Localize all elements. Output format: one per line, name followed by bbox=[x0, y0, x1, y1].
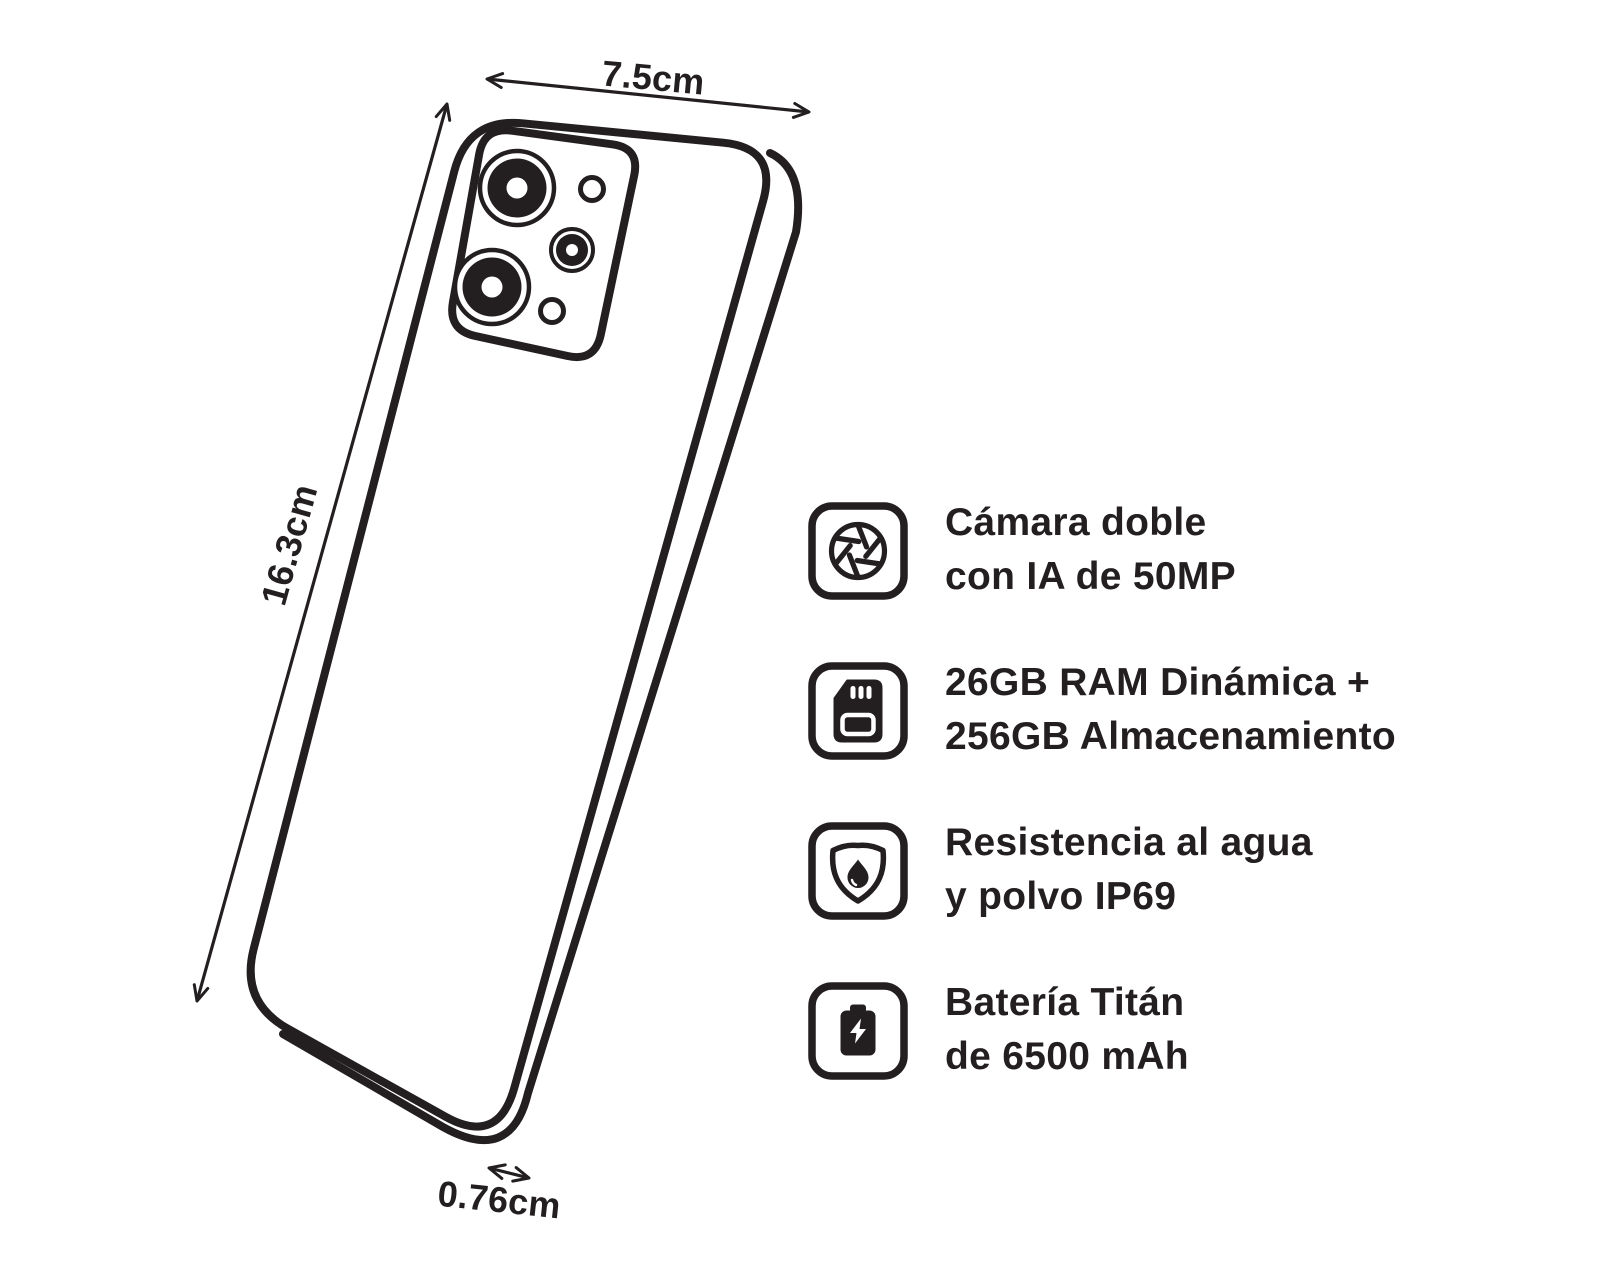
feature-line: 26GB RAM Dinámica + bbox=[945, 656, 1396, 710]
feature-line: 256GB Almacenamiento bbox=[945, 710, 1396, 764]
second-lens bbox=[455, 250, 529, 324]
depth-dimension-label: 0.76cm bbox=[436, 1173, 563, 1227]
shield-water-icon bbox=[808, 822, 908, 920]
feature-text-battery: Batería Titán de 6500 mAh bbox=[945, 976, 1189, 1084]
battery-bolt-icon bbox=[808, 982, 908, 1080]
feature-line: y polvo IP69 bbox=[945, 870, 1313, 924]
feature-row-memory: 26GB RAM Dinámica + 256GB Almacenamiento bbox=[808, 662, 1396, 764]
main-lens bbox=[480, 151, 554, 225]
feature-text-camera: Cámara doble con IA de 50MP bbox=[945, 496, 1236, 604]
depth-dimension: 0.76cm bbox=[436, 1168, 563, 1226]
feature-text-resistance: Resistencia al agua y polvo IP69 bbox=[945, 816, 1313, 924]
sd-card-icon bbox=[808, 662, 908, 760]
camera-aperture-icon bbox=[808, 502, 908, 600]
width-dimension: 7.5cm bbox=[487, 52, 809, 112]
sensor-dot bbox=[541, 300, 564, 323]
feature-line: de 6500 mAh bbox=[945, 1030, 1189, 1084]
width-dimension-label: 7.5cm bbox=[600, 52, 706, 102]
feature-line: con IA de 50MP bbox=[945, 550, 1236, 604]
feature-line: Cámara doble bbox=[945, 496, 1236, 550]
feature-row-camera: Cámara doble con IA de 50MP bbox=[808, 502, 1236, 604]
flash-led bbox=[581, 178, 604, 201]
feature-row-resistance: Resistencia al agua y polvo IP69 bbox=[808, 822, 1313, 924]
feature-text-memory: 26GB RAM Dinámica + 256GB Almacenamiento bbox=[945, 656, 1396, 764]
depth-lens bbox=[551, 229, 593, 271]
feature-row-battery: Batería Titán de 6500 mAh bbox=[808, 982, 1189, 1084]
product-spec-diagram: 7.5cm 16.3cm 0.76cm bbox=[0, 0, 1600, 1280]
height-dimension-label: 16.3cm bbox=[253, 480, 326, 610]
phone-diagram: 7.5cm 16.3cm 0.76cm bbox=[0, 0, 1600, 1280]
feature-line: Batería Titán bbox=[945, 976, 1189, 1030]
feature-line: Resistencia al agua bbox=[945, 816, 1313, 870]
